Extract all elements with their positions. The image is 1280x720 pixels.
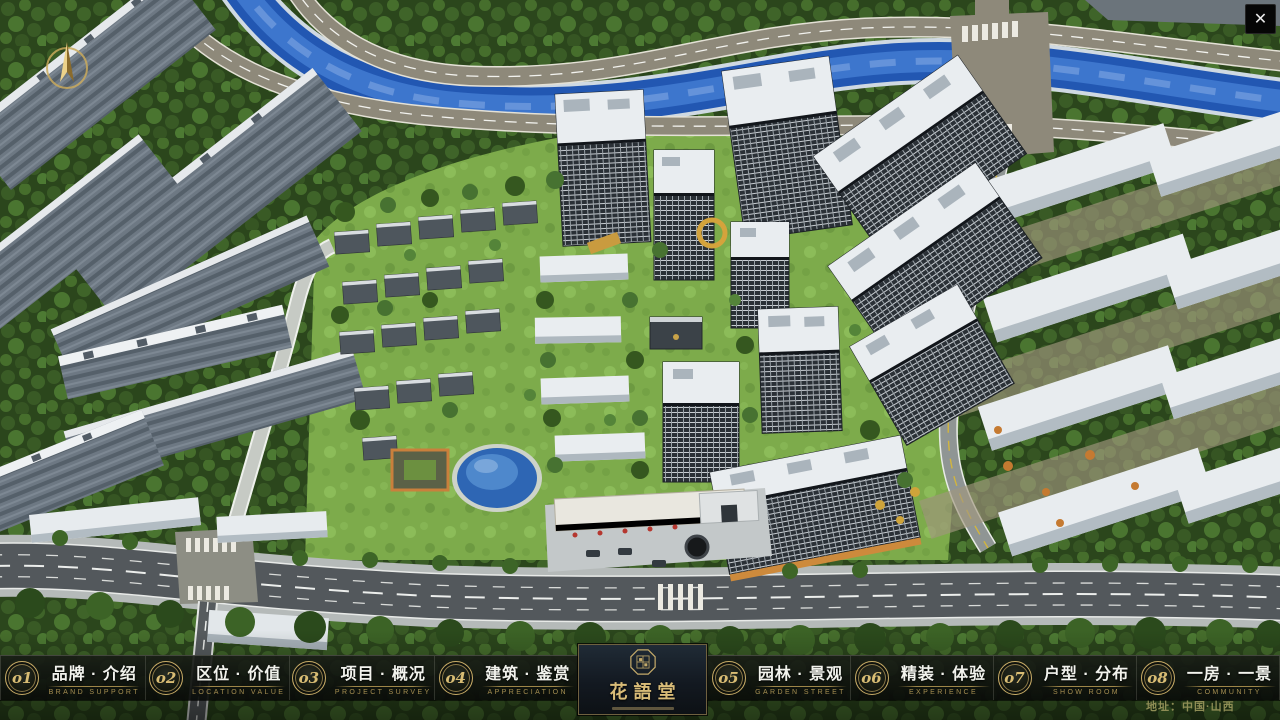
nav-label-zh: 一房 · 一景 bbox=[1187, 660, 1272, 684]
sales-presentation-screen: ✕ o1 品牌 · 介绍 BRAND SUPPORT o2 区位 · 价值 LO… bbox=[0, 0, 1280, 720]
nav-label-zh: 精装 · 体验 bbox=[901, 660, 986, 684]
nav-label-en: SHOW ROOM bbox=[1053, 689, 1120, 696]
nav-label-zh: 园林 · 景观 bbox=[758, 660, 843, 684]
gold-divider bbox=[755, 686, 847, 687]
nav-label-zh: 项目 · 概况 bbox=[341, 660, 426, 684]
close-icon: ✕ bbox=[1254, 11, 1267, 27]
nav-label-zh: 区位 · 价值 bbox=[196, 660, 281, 684]
amenity-court bbox=[392, 450, 448, 490]
clubhouse bbox=[650, 317, 702, 349]
pond bbox=[452, 444, 542, 512]
nav-label-en: PROJECT SURVEY bbox=[335, 689, 432, 696]
masterplan-render bbox=[0, 0, 1280, 720]
gold-divider bbox=[335, 686, 432, 687]
nav-label-zh: 户型 · 分布 bbox=[1044, 660, 1129, 684]
gold-divider bbox=[192, 686, 285, 687]
item-number-badge: o1 bbox=[5, 661, 39, 695]
nav-label-zh: 建筑 · 鉴赏 bbox=[485, 660, 570, 684]
nav-item-location[interactable]: o2 区位 · 价值 LOCATION VALUE bbox=[145, 656, 290, 700]
item-number-badge: o2 bbox=[149, 661, 183, 695]
nav-item-brand[interactable]: o1 品牌 · 介绍 BRAND SUPPORT bbox=[0, 656, 145, 700]
nav-label-en: GARDEN STREET bbox=[755, 689, 846, 696]
nav-item-project[interactable]: o3 项目 · 概况 PROJECT SURVEY bbox=[289, 656, 434, 700]
logo-panel[interactable]: 花語堂 bbox=[578, 644, 707, 715]
item-number-badge: o8 bbox=[1141, 661, 1175, 695]
project-address: 地址：中国·山西 bbox=[1146, 698, 1235, 714]
gold-divider bbox=[48, 686, 140, 687]
nav-label-en: APPRECIATION bbox=[488, 689, 568, 696]
nav-item-view[interactable]: o8 一房 · 一景 COMMUNITY bbox=[1136, 656, 1280, 700]
logo-tagline bbox=[612, 707, 674, 710]
item-number-badge: o4 bbox=[439, 661, 473, 695]
gold-divider bbox=[1184, 686, 1276, 687]
nav-label-en: EXPERIENCE bbox=[909, 689, 978, 696]
item-number-badge: o7 bbox=[998, 661, 1032, 695]
nav-label-en: LOCATION VALUE bbox=[192, 689, 285, 696]
nav-label-zh: 品牌 · 介绍 bbox=[52, 660, 137, 684]
item-number-badge: o5 bbox=[712, 661, 746, 695]
nav-group-left: o1 品牌 · 介绍 BRAND SUPPORT o2 区位 · 价值 LOCA… bbox=[0, 656, 578, 700]
seal-emblem-icon bbox=[630, 649, 656, 675]
item-number-badge: o6 bbox=[855, 661, 889, 695]
nav-item-floorplan[interactable]: o7 户型 · 分布 SHOW ROOM bbox=[993, 656, 1136, 700]
nav-item-interior[interactable]: o6 精装 · 体验 EXPERIENCE bbox=[850, 656, 993, 700]
gold-divider bbox=[1041, 686, 1133, 687]
nav-group-right: o5 园林 · 景观 GARDEN STREET o6 精装 · 体验 EXPE… bbox=[707, 656, 1280, 700]
bottom-nav-bar: o1 品牌 · 介绍 BRAND SUPPORT o2 区位 · 价值 LOCA… bbox=[0, 655, 1280, 700]
gold-divider bbox=[482, 686, 574, 687]
nav-label-en: COMMUNITY bbox=[1197, 689, 1262, 696]
close-button[interactable]: ✕ bbox=[1245, 4, 1276, 34]
brand-logo-title: 花語堂 bbox=[604, 678, 682, 704]
gold-divider bbox=[898, 686, 990, 687]
nav-item-architecture[interactable]: o4 建筑 · 鉴赏 APPRECIATION bbox=[434, 656, 579, 700]
nav-item-garden[interactable]: o5 园林 · 景观 GARDEN STREET bbox=[707, 656, 850, 700]
item-number-badge: o3 bbox=[292, 661, 326, 695]
nav-label-en: BRAND SUPPORT bbox=[49, 689, 140, 696]
